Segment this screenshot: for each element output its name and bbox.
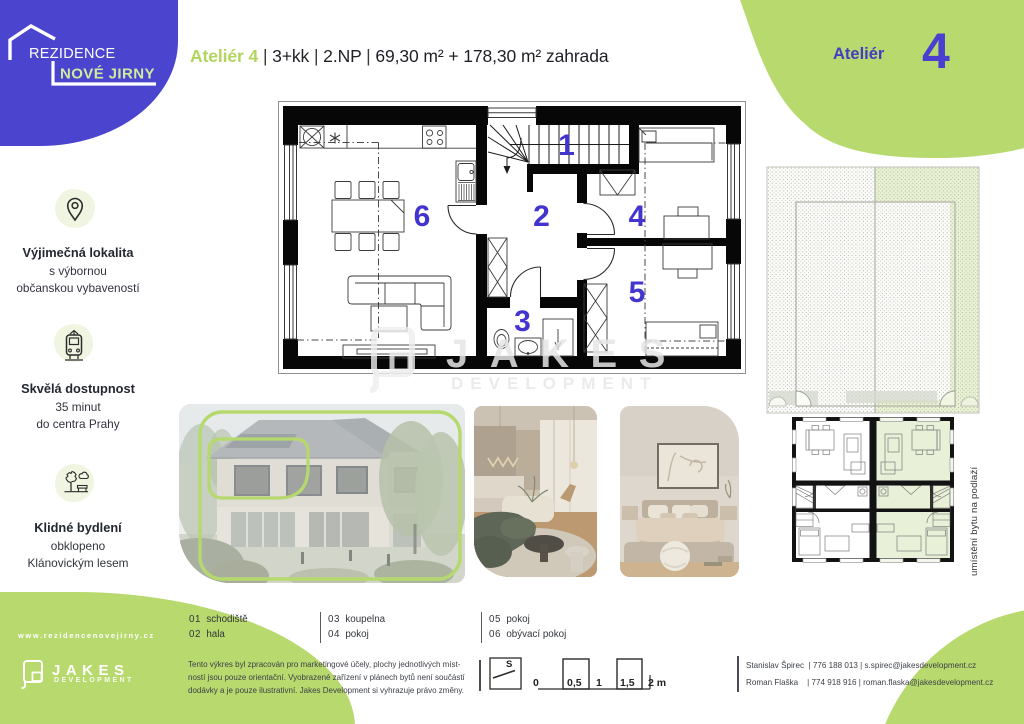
svg-text:1: 1 <box>558 129 575 162</box>
svg-text:2: 2 <box>533 200 550 233</box>
svg-text:5: 5 <box>629 276 646 309</box>
svg-text:4: 4 <box>629 200 646 233</box>
svg-text:6: 6 <box>414 200 431 233</box>
